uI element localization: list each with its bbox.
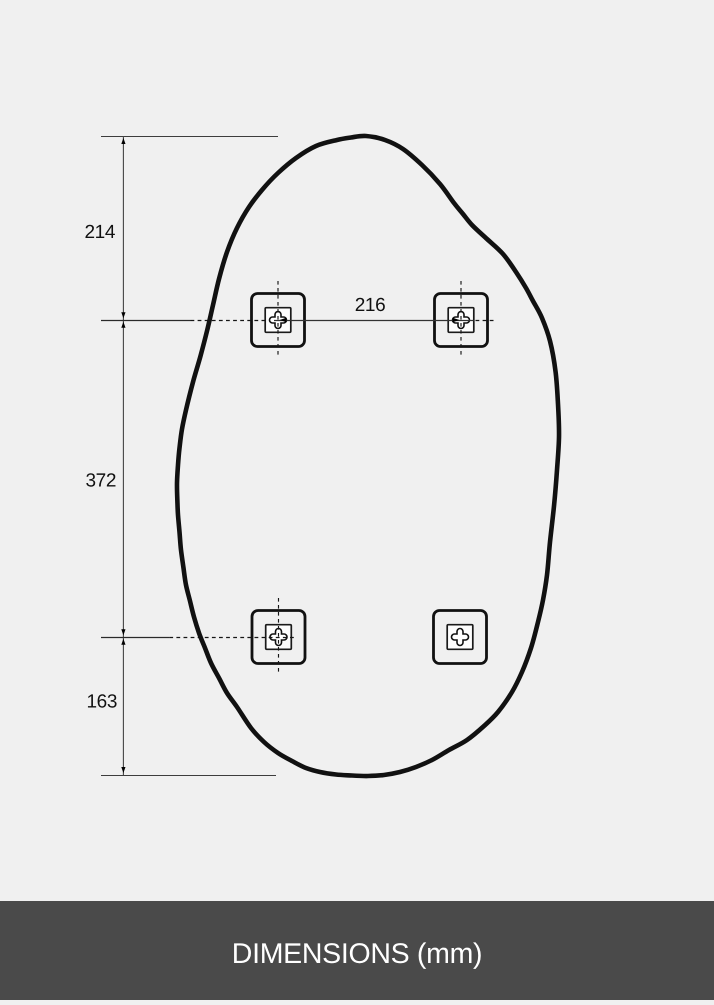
svg-text:214: 214	[84, 222, 115, 243]
svg-text:163: 163	[86, 692, 117, 713]
svg-text:216: 216	[355, 295, 386, 316]
svg-text:DIMENSIONS (mm): DIMENSIONS (mm)	[232, 938, 482, 970]
svg-text:372: 372	[85, 471, 116, 492]
